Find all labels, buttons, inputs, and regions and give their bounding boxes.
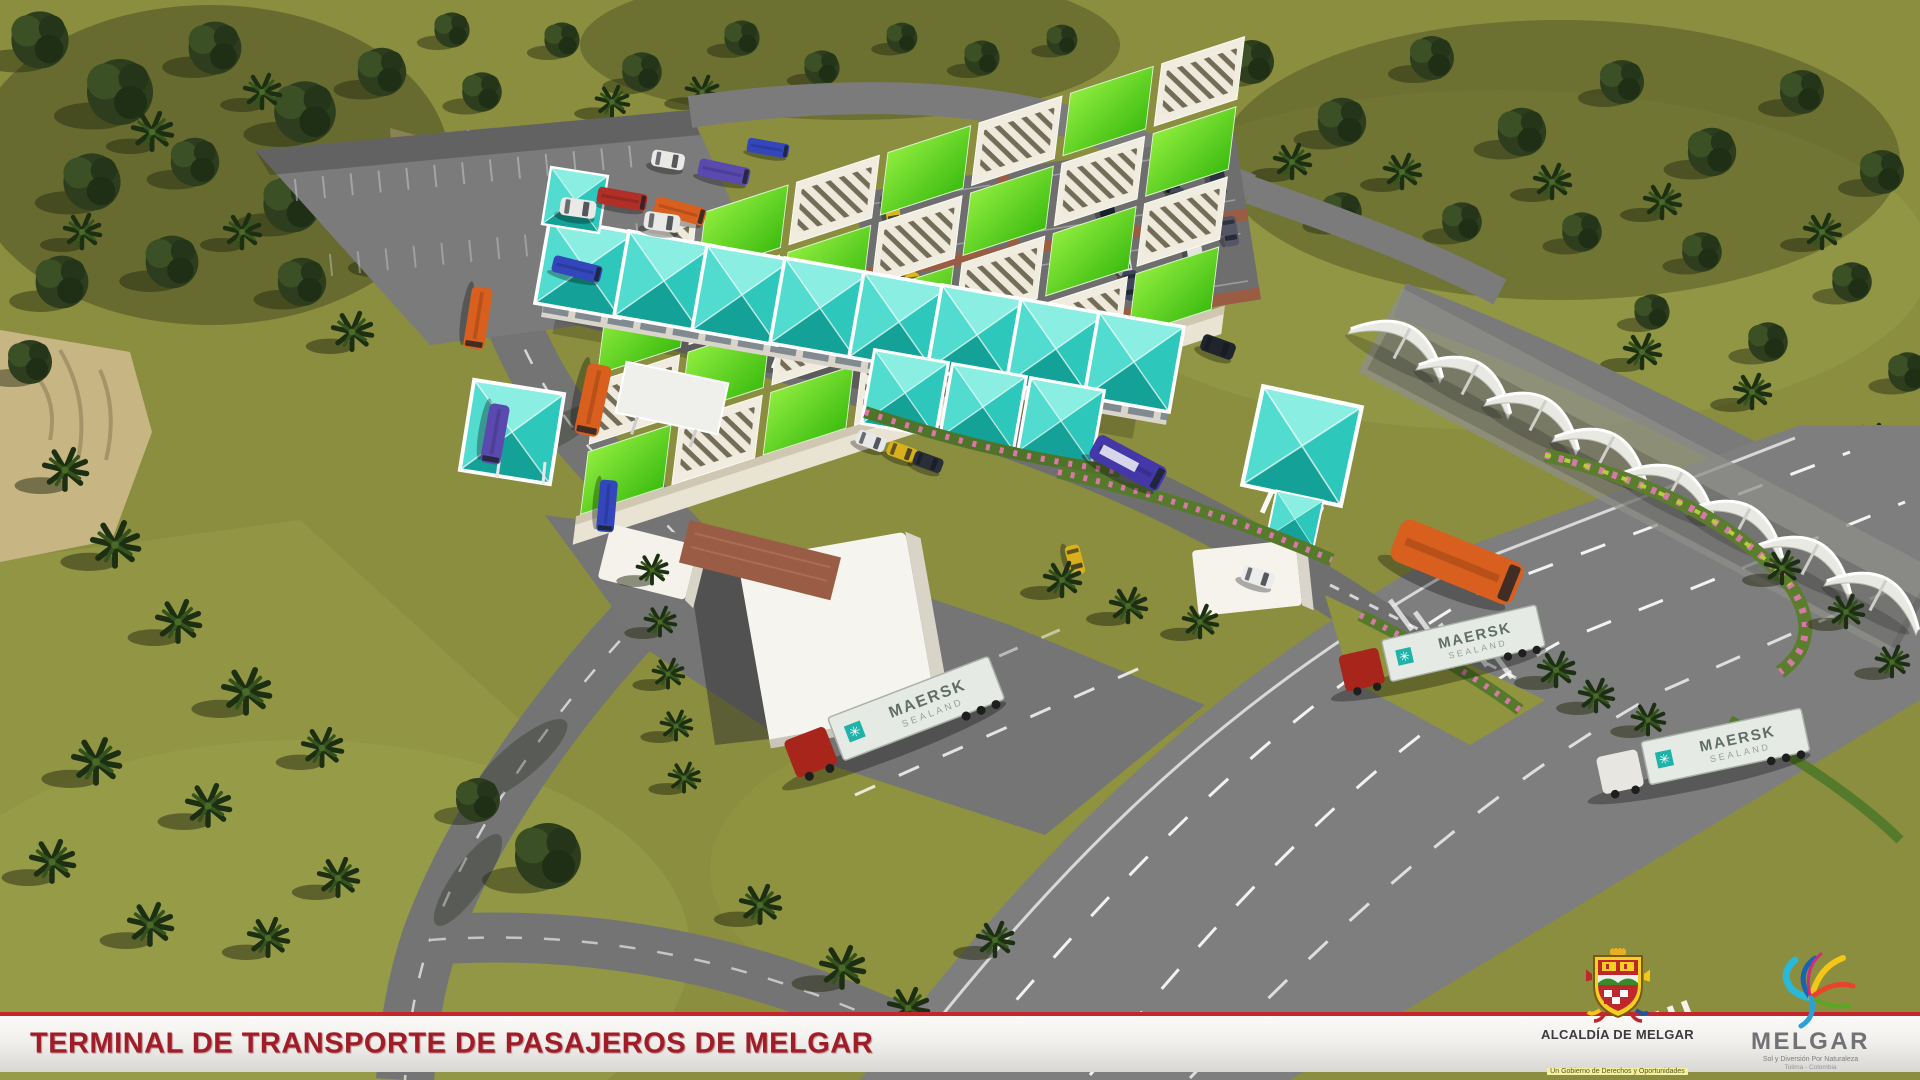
melgar-logo: MELGAR Sol y Diversión Por Naturaleza To… bbox=[1703, 946, 1918, 1071]
melgar-name: MELGAR bbox=[1703, 1030, 1918, 1054]
melgar-location: Tolima - Colombia bbox=[1703, 1064, 1918, 1071]
alcaldia-logo: ALCALDÍA DE MELGAR Un Gobierno de Derech… bbox=[1505, 948, 1730, 1080]
melgar-burst-icon bbox=[1765, 946, 1857, 1030]
entrance-gate-canopy bbox=[460, 380, 564, 484]
banner-title: TERMINAL DE TRANSPORTE DE PASAJEROS DE M… bbox=[30, 1028, 873, 1061]
melgar-slogan: Sol y Diversión Por Naturaleza bbox=[1703, 1056, 1918, 1063]
alcaldia-crest-icon bbox=[1586, 948, 1650, 1026]
render-frame: ✳ MAERSK SEALAND ✳ MAERSK SEALAND ✳ MAER… bbox=[0, 0, 1920, 1080]
terminal-aerial-render: ✳ MAERSK SEALAND ✳ MAERSK SEALAND ✳ MAER… bbox=[0, 0, 1920, 1080]
alcaldia-slogan: Un Gobierno de Derechos y Oportunidades bbox=[1547, 1068, 1688, 1075]
alcaldia-name: ALCALDÍA DE MELGAR bbox=[1505, 1027, 1730, 1042]
